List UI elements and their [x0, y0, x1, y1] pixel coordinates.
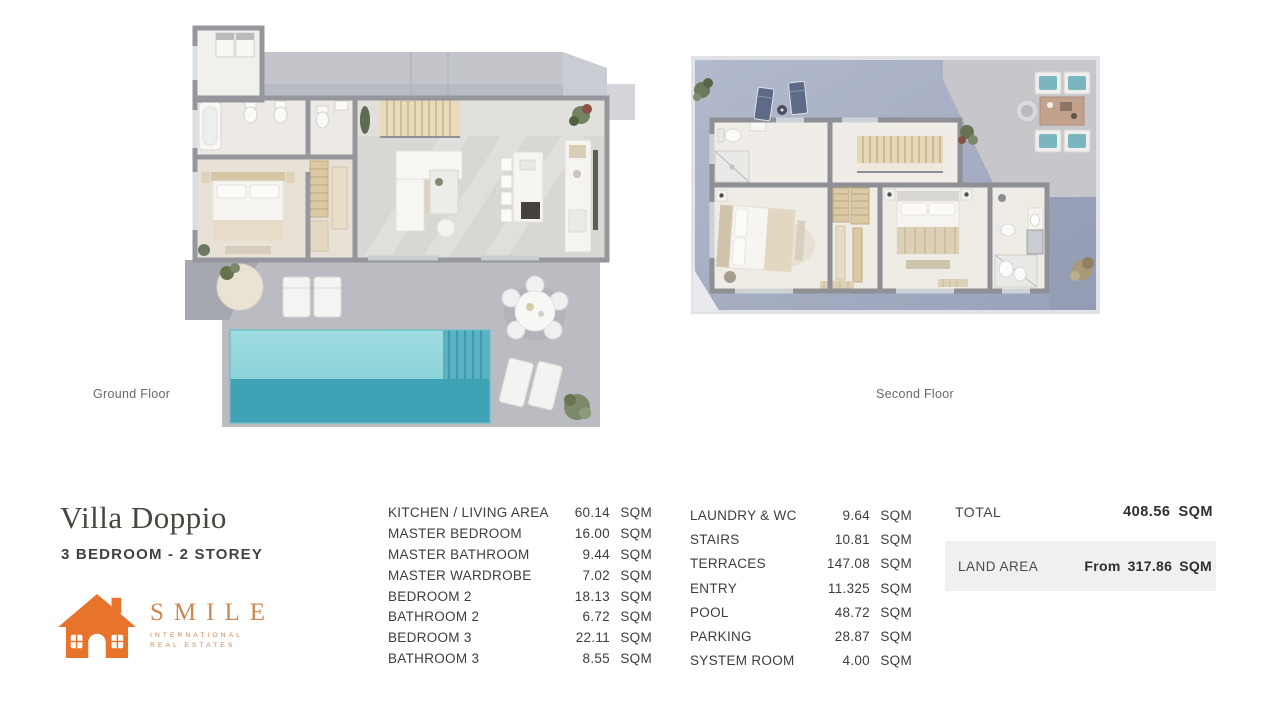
- room-area-unit: SQM: [610, 609, 652, 624]
- area-row: SYSTEM ROOM4.00SQM: [690, 649, 912, 673]
- room-area-value: 60.14: [558, 505, 610, 520]
- area-row: KITCHEN / LIVING AREA60.14SQM: [388, 502, 652, 523]
- room-area-unit: SQM: [870, 532, 912, 547]
- room-area-value: 9.44: [558, 547, 610, 562]
- entry-rug: [217, 263, 263, 310]
- area-row: MASTER BEDROOM16.00SQM: [388, 523, 652, 544]
- area-row: BATHROOM 26.72SQM: [388, 606, 652, 627]
- windows: [193, 46, 198, 230]
- land-area-number: 317.86: [1128, 558, 1173, 574]
- land-area-box: LAND AREA From317.86SQM: [945, 541, 1216, 591]
- kitchen-island: [501, 152, 543, 222]
- stairs: [380, 100, 460, 137]
- room-area-value: 7.02: [558, 568, 610, 583]
- room-label: SYSTEM ROOM: [690, 653, 818, 668]
- stairs: [857, 136, 943, 172]
- room-area-unit: SQM: [610, 651, 652, 666]
- house-icon: [58, 592, 136, 658]
- logo-brand: SMILE: [150, 600, 275, 625]
- logo-tagline-line2: REAL ESTATES: [150, 641, 275, 651]
- land-area-value: From317.86SQM: [1084, 558, 1216, 574]
- room-area-value: 28.87: [818, 629, 870, 644]
- room-area-value: 48.72: [818, 605, 870, 620]
- total-value-number: 408.56: [1123, 504, 1170, 520]
- terrace-shadow: [1050, 197, 1096, 310]
- room-area-unit: SQM: [610, 505, 652, 520]
- total-value: 408.56SQM: [1123, 504, 1213, 520]
- room-area-value: 6.72: [558, 609, 610, 624]
- land-area-prefix: From: [1084, 558, 1120, 574]
- room-label: BATHROOM 2: [388, 609, 558, 624]
- room-label: BEDROOM 2: [388, 589, 558, 604]
- area-row: MASTER WARDROBE7.02SQM: [388, 565, 652, 586]
- room-area-value: 16.00: [558, 526, 610, 541]
- area-row: MASTER BATHROOM9.44SQM: [388, 544, 652, 565]
- room-area-unit: SQM: [610, 568, 652, 583]
- pool: [230, 330, 490, 423]
- lounger: [788, 81, 807, 114]
- room-area-unit: SQM: [610, 526, 652, 541]
- room-area-value: 10.81: [818, 532, 870, 547]
- room-area-unit: SQM: [870, 629, 912, 644]
- page-title: Villa Doppio: [60, 500, 227, 536]
- total-label: TOTAL: [955, 504, 1123, 520]
- ground-floor-label: Ground Floor: [93, 387, 170, 401]
- room-label: PARKING: [690, 629, 818, 644]
- room-label: MASTER WARDROBE: [388, 568, 558, 583]
- area-row: BEDROOM 218.13SQM: [388, 586, 652, 607]
- total-row: TOTAL 408.56SQM: [955, 504, 1213, 520]
- second-floor-label: Second Floor: [876, 387, 954, 401]
- logo-text: SMILE INTERNATIONAL REAL ESTATES: [150, 592, 275, 651]
- room-area-unit: SQM: [870, 556, 912, 571]
- area-table-column-2: LAUNDRY & WC9.64SQMSTAIRS10.81SQMTERRACE…: [690, 503, 912, 673]
- ground-floor-render: [183, 22, 658, 432]
- room-area-unit: SQM: [610, 547, 652, 562]
- area-table-column-1: KITCHEN / LIVING AREA60.14SQMMASTER BEDR…: [388, 502, 652, 669]
- page-subtitle: 3 BEDROOM - 2 STOREY: [61, 546, 263, 563]
- room-area-value: 18.13: [558, 589, 610, 604]
- room-label: BEDROOM 3: [388, 630, 558, 645]
- area-row: BATHROOM 38.55SQM: [388, 648, 652, 669]
- logo-tagline: INTERNATIONAL REAL ESTATES: [150, 631, 275, 651]
- room-area-value: 22.11: [558, 630, 610, 645]
- room-area-unit: SQM: [870, 653, 912, 668]
- room-label: MASTER BATHROOM: [388, 547, 558, 562]
- second-floor-render: [690, 50, 1110, 340]
- area-row: LAUNDRY & WC9.64SQM: [690, 503, 912, 527]
- second-floor-plan: [690, 50, 1110, 340]
- room-label: POOL: [690, 605, 818, 620]
- room-label: MASTER BEDROOM: [388, 526, 558, 541]
- room-label: LAUNDRY & WC: [690, 508, 818, 523]
- land-area-unit: SQM: [1179, 558, 1212, 574]
- room-area-unit: SQM: [610, 630, 652, 645]
- room-area-value: 147.08: [818, 556, 870, 571]
- room-label: KITCHEN / LIVING AREA: [388, 505, 558, 520]
- area-row: STAIRS10.81SQM: [690, 527, 912, 551]
- area-row: POOL48.72SQM: [690, 600, 912, 624]
- total-value-unit: SQM: [1178, 504, 1213, 520]
- brochure-page: Ground Floor Second Floor Villa Doppio 3…: [0, 0, 1280, 709]
- room-area-unit: SQM: [870, 581, 912, 596]
- room-area-unit: SQM: [870, 605, 912, 620]
- room-area-value: 4.00: [818, 653, 870, 668]
- land-area-label: LAND AREA: [945, 559, 1084, 574]
- room-area-value: 9.64: [818, 508, 870, 523]
- smile-logo: SMILE INTERNATIONAL REAL ESTATES: [58, 592, 275, 658]
- ground-floor-plan: [183, 22, 658, 432]
- area-row: PARKING28.87SQM: [690, 624, 912, 648]
- room-label: BATHROOM 3: [388, 651, 558, 666]
- area-row: TERRACES147.08SQM: [690, 552, 912, 576]
- cup: [781, 109, 784, 112]
- room-area-value: 8.55: [558, 651, 610, 666]
- room-area-unit: SQM: [610, 589, 652, 604]
- plant-icon: [360, 106, 370, 134]
- logo-tagline-line1: INTERNATIONAL: [150, 631, 275, 641]
- area-row: ENTRY11.325SQM: [690, 576, 912, 600]
- room-label: STAIRS: [690, 532, 818, 547]
- area-row: BEDROOM 322.11SQM: [388, 627, 652, 648]
- room-area-value: 11.325: [818, 581, 870, 596]
- room-label: ENTRY: [690, 581, 818, 596]
- room-label: TERRACES: [690, 556, 818, 571]
- room-area-unit: SQM: [870, 508, 912, 523]
